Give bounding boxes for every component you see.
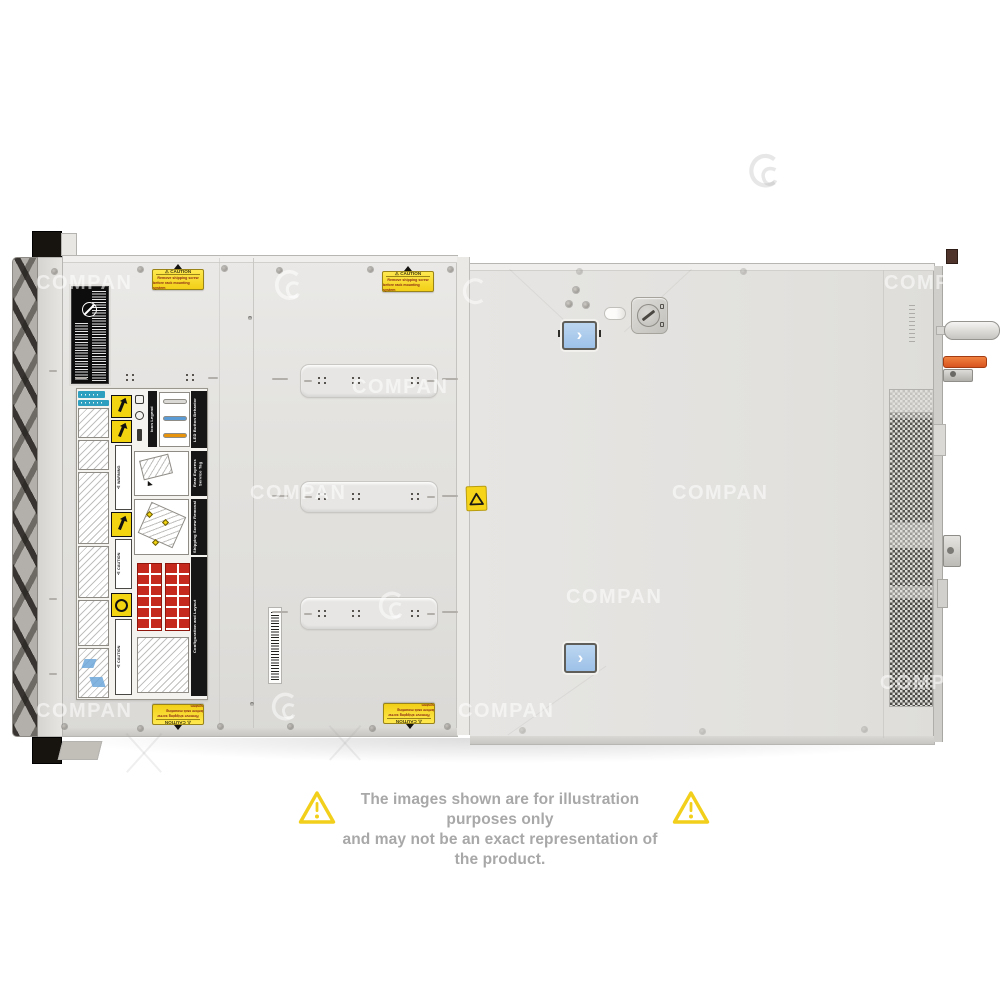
screw	[445, 724, 450, 729]
vent-hole	[250, 702, 254, 706]
chassis-sketch	[138, 502, 187, 549]
instruction-diagram	[78, 408, 109, 438]
orange-release-lever	[943, 356, 987, 368]
bottom-edge-left	[63, 728, 457, 736]
section-header: Icon Legend	[148, 391, 157, 447]
vent-panel-seam	[883, 270, 884, 738]
screwdriver-icon	[137, 429, 142, 441]
edge-notch	[933, 424, 946, 456]
sticker-pointer	[174, 725, 182, 730]
top-edge-right	[470, 264, 934, 271]
led-state-off	[163, 399, 187, 404]
vent-dash	[49, 598, 57, 600]
chassis-sketch	[139, 454, 173, 481]
clock-icon	[135, 411, 144, 420]
icon-legend-icons	[133, 393, 147, 445]
rack-ear-bottom-grip	[58, 741, 103, 760]
section-header: Configuration and Layout	[191, 557, 207, 696]
screw	[741, 269, 746, 274]
product-photo-page: ⚠ CAUTION Remove shipping screw before r…	[0, 0, 1000, 1000]
fine-print	[92, 291, 106, 381]
warning-pictogram	[111, 420, 132, 443]
shipping-caution-sticker: ⚠ CAUTION Remove shipping screw before r…	[383, 703, 435, 724]
watermark-text: COMPAN	[352, 376, 448, 399]
cover-emboss-slots	[300, 597, 438, 630]
rivet	[583, 302, 589, 308]
panel-seam	[219, 258, 220, 728]
lever-bracket	[943, 369, 973, 382]
screw	[62, 724, 67, 729]
shipping-caution-sticker: ⚠ CAUTION Remove shipping screw before r…	[152, 704, 204, 725]
shipping-screw-diagram	[134, 499, 189, 555]
screw	[368, 267, 373, 272]
swirl-logo-watermark	[748, 152, 782, 194]
screw	[222, 266, 227, 271]
section-header: Shipping Screw Removal	[191, 499, 207, 555]
barcode-label	[268, 607, 282, 684]
section-header: Rear Express Service Tag	[191, 451, 207, 496]
clip-screw	[947, 547, 954, 554]
vent-dots	[186, 374, 197, 381]
warning-triangle-icon	[469, 491, 484, 506]
chassis-sketch	[137, 637, 189, 693]
screw	[700, 729, 705, 734]
latch-nub	[598, 330, 601, 337]
rear-corner-block	[946, 249, 958, 264]
latch-slider	[604, 307, 626, 320]
top-edge-left	[63, 256, 457, 263]
diagram-figure	[89, 677, 105, 687]
shipping-caution-sticker: ⚠ CAUTION Remove shipping screw before r…	[152, 269, 204, 290]
instruction-diagram	[78, 648, 109, 698]
vent-dash	[208, 377, 218, 379]
warning-pictogram	[111, 395, 132, 418]
disclaimer-text: The images shown are for illustration pu…	[338, 790, 662, 870]
psu-handle	[944, 321, 1000, 340]
warning-triangle-icon	[297, 789, 337, 827]
service-tag-diagram	[134, 451, 189, 496]
cover-lock-dial	[631, 297, 668, 334]
instruction-diagram	[78, 600, 109, 646]
vent-hole	[248, 316, 252, 320]
service-info-label: ⚠ WARNING ⚠ CAUTION ⚠ CAUTION Icon Legen…	[76, 388, 208, 700]
instruction-diagram	[78, 472, 109, 544]
caution-title: ⚠ CAUTION	[156, 269, 200, 275]
chevron-right-icon: ›	[577, 326, 583, 343]
vent-shading	[890, 390, 933, 706]
vent-dots	[318, 377, 329, 384]
screw	[577, 269, 582, 274]
cover-release-latch: ›	[564, 643, 597, 673]
vent-dash	[442, 495, 458, 497]
section-header: LED Button Behavior	[191, 391, 207, 448]
caution-strip: ⚠ CAUTION	[115, 539, 132, 589]
watermark-text: COMPAN	[880, 672, 976, 695]
embossed-marking	[908, 305, 917, 343]
watermark-text: COMPAN	[36, 272, 132, 295]
vent-dots	[352, 493, 363, 500]
chevron-right-icon: ›	[578, 649, 584, 666]
watermark-text: COMPAN	[458, 700, 554, 723]
vent-dash	[49, 673, 57, 675]
cover-release-latch: ›	[562, 321, 597, 350]
screw	[138, 267, 143, 272]
configuration-diagram	[134, 557, 189, 696]
screw	[138, 726, 143, 731]
instruction-diagram	[78, 440, 109, 470]
swirl-logo-watermark	[462, 276, 488, 310]
warning-strip: ⚠ WARNING	[115, 445, 132, 510]
led-state-blue	[163, 416, 187, 421]
vent-dash	[304, 380, 312, 382]
vent-dots	[318, 610, 329, 617]
wrench-icon	[135, 395, 144, 404]
shipping-caution-sticker: ⚠ CAUTION Remove shipping screw before r…	[382, 271, 434, 292]
warning-triangle-sticker	[466, 486, 488, 512]
front-bezel	[12, 257, 38, 737]
psu-vent-grid	[889, 389, 934, 707]
warning-triangle-icon	[671, 789, 711, 827]
vent-dash	[49, 370, 57, 372]
warning-pictogram	[111, 512, 132, 537]
led-state-amber	[163, 433, 187, 438]
sticker-pointer	[406, 724, 414, 729]
label-chip	[78, 391, 105, 398]
rack-ear-top-grip	[61, 233, 77, 256]
screw	[218, 724, 223, 729]
front-edge	[38, 257, 62, 737]
bracket-screw	[950, 371, 956, 377]
rack-ear-top	[32, 231, 62, 258]
vent-dash	[427, 613, 435, 615]
vent-dash	[427, 496, 435, 498]
vent-dash	[304, 613, 312, 615]
label-chip	[78, 400, 109, 406]
watermark-text: COMPAN	[672, 482, 768, 505]
disclaimer-line-1: The images shown are for illustration pu…	[338, 790, 662, 830]
bottom-edge-right	[470, 736, 934, 744]
vent-dots	[411, 493, 422, 500]
led-behavior-box	[159, 392, 190, 447]
latch-nub	[558, 330, 561, 337]
vent-dots	[411, 610, 422, 617]
watermark-text: COMPAN	[884, 272, 980, 295]
caution-pictogram	[111, 593, 132, 617]
vent-dots	[126, 374, 137, 381]
screw	[448, 267, 453, 272]
unlock-icon	[660, 322, 664, 327]
arrow	[145, 481, 152, 488]
vent-dash	[272, 378, 288, 380]
screw	[862, 727, 867, 732]
drive-bay-grid	[165, 563, 190, 631]
watermark-text: COMPAN	[250, 482, 346, 505]
vent-dash	[442, 611, 458, 613]
watermark-text: COMPAN	[36, 700, 132, 723]
right-sidewall	[933, 266, 943, 742]
instruction-diagram	[78, 546, 109, 598]
disclaimer-line-2: and may not be an exact representation o…	[338, 830, 662, 870]
swirl-logo-watermark	[271, 691, 299, 726]
vent-dash	[75, 377, 87, 379]
swirl-logo-watermark	[378, 590, 406, 625]
vent-dots	[352, 610, 363, 617]
swirl-logo-watermark	[274, 268, 304, 306]
screw	[520, 728, 525, 733]
rivet	[566, 301, 572, 307]
lock-icon	[660, 304, 664, 309]
watermark-text: COMPAN	[566, 586, 662, 609]
screw	[370, 726, 375, 731]
regulatory-label	[71, 286, 109, 384]
vent-dash	[272, 611, 288, 613]
fine-print	[75, 323, 88, 380]
rivet	[573, 287, 579, 293]
caution-strip: ⚠ CAUTION	[115, 619, 132, 695]
edge-tab	[937, 579, 948, 608]
drive-bay-grid	[137, 563, 162, 631]
